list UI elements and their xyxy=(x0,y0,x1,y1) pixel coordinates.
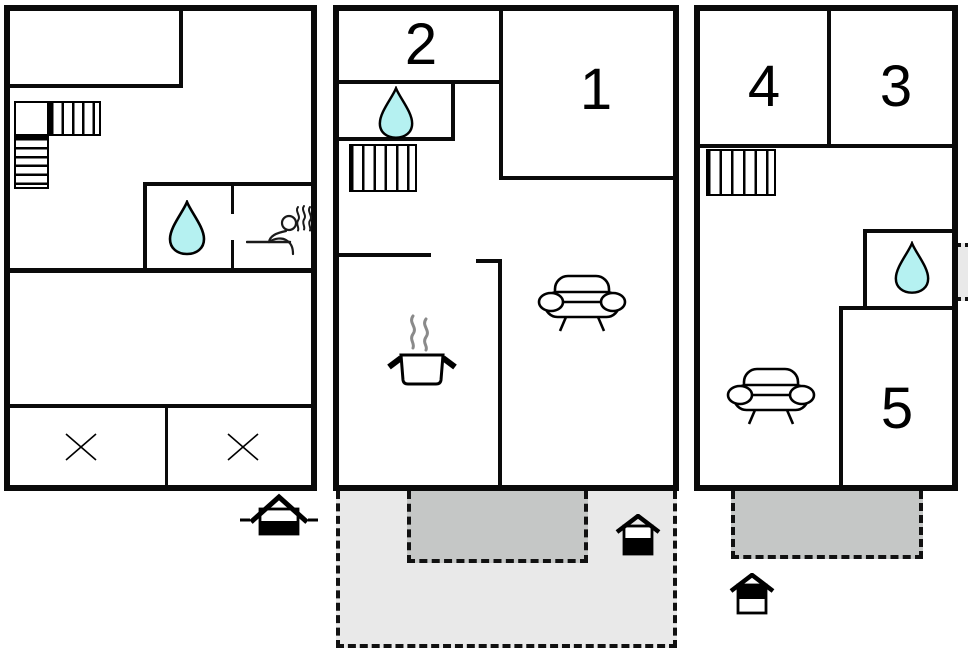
sofa-icon xyxy=(725,364,817,426)
water-drop-icon xyxy=(893,241,931,295)
staircase-treads xyxy=(706,149,776,196)
sofa-icon xyxy=(536,271,628,333)
wall xyxy=(451,84,455,140)
wall xyxy=(10,404,311,408)
wall xyxy=(10,268,311,273)
wall xyxy=(165,404,168,485)
sauna-icon xyxy=(246,204,312,256)
wall xyxy=(499,11,503,180)
x-mark-icon xyxy=(226,432,260,462)
wall xyxy=(700,144,952,148)
wall xyxy=(231,182,234,214)
room-4-label: 4 xyxy=(748,58,780,116)
wall xyxy=(839,306,952,310)
wall xyxy=(499,176,673,180)
staircase-landing xyxy=(14,101,49,136)
water-drop-icon xyxy=(377,86,415,140)
wall xyxy=(339,253,431,257)
wall xyxy=(839,306,843,485)
entrance-house-icon xyxy=(240,492,318,536)
room-2-label: 2 xyxy=(405,16,437,74)
wall xyxy=(143,182,147,268)
wall xyxy=(179,11,183,88)
terrace-dark xyxy=(407,491,588,563)
wall xyxy=(231,240,234,268)
x-mark-icon xyxy=(64,432,98,462)
floor-plan: 2 1 xyxy=(0,0,968,652)
wall xyxy=(827,11,831,148)
room-3-label: 3 xyxy=(880,58,912,116)
staircase-treads-vertical xyxy=(14,136,49,189)
entrance-house-icon xyxy=(728,573,776,615)
wall xyxy=(339,80,502,84)
wall xyxy=(863,229,867,310)
staircase-treads xyxy=(349,144,417,192)
water-drop-icon xyxy=(167,200,207,256)
middle-floor-outline xyxy=(333,5,679,491)
cooking-pot-icon xyxy=(383,313,461,387)
staircase-treads-horizontal xyxy=(49,101,101,136)
wall xyxy=(863,229,952,233)
wall xyxy=(10,84,182,88)
wall xyxy=(498,259,502,485)
room-1-label: 1 xyxy=(580,61,612,119)
wall xyxy=(143,182,311,186)
terrace-dark xyxy=(731,491,923,559)
room-5-label: 5 xyxy=(881,380,913,438)
entrance-house-icon xyxy=(614,514,662,556)
